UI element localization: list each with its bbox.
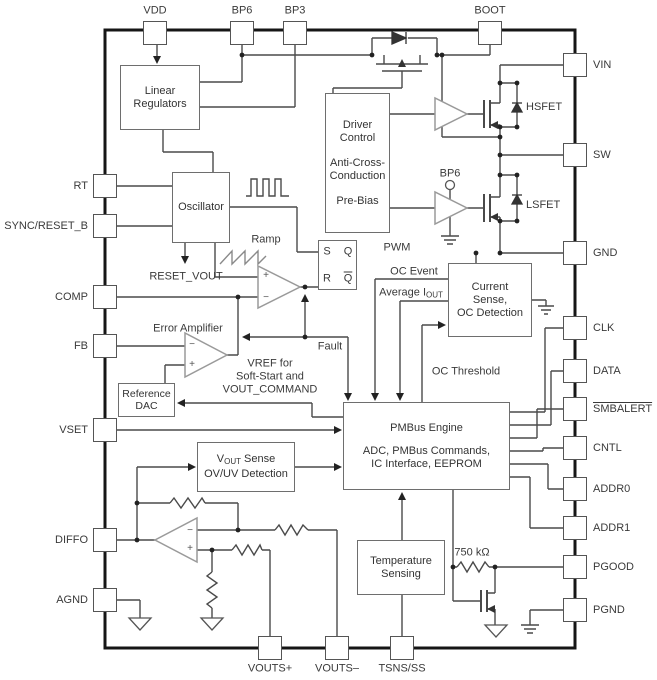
pin-vouts-minus	[325, 636, 349, 660]
current-sense-line2: Sense,	[473, 294, 507, 307]
pin-fb-label: FB	[74, 340, 88, 353]
pin-rt	[93, 174, 117, 198]
pin-bp6-label: BP6	[232, 5, 253, 18]
resistor-750k	[457, 562, 489, 572]
diff-amp-minus: −	[187, 526, 193, 536]
oc-event-label: OC Event	[390, 266, 438, 279]
vref-line2: Soft-Start and	[223, 371, 318, 384]
pin-clk-label: CLK	[593, 322, 614, 335]
clock-waveform-icon	[246, 179, 289, 196]
pin-data	[563, 359, 587, 383]
pin-smbalert	[563, 397, 587, 421]
pin-vouts-minus-label: VOUTS–	[315, 663, 359, 676]
pmbus-title: PMBus Engine	[390, 422, 463, 435]
pin-addr0-label: ADDR0	[593, 483, 630, 496]
latch-qbar-label: Q	[344, 273, 353, 286]
pin-pgood	[563, 555, 587, 579]
pwm-label: PWM	[384, 242, 411, 255]
pin-sw	[563, 143, 587, 167]
pin-cntl-label: CNTL	[593, 442, 622, 455]
reference-dac-line2: DAC	[135, 400, 157, 412]
linear-regulators-line2: Regulators	[133, 98, 186, 111]
reset-vout-label: RESET_VOUT	[149, 271, 222, 284]
resistor-750k-label: 750 kΩ	[454, 547, 489, 560]
driver-control-block: Driver Control Anti-Cross- Conduction Pr…	[325, 93, 390, 233]
fault-label: Fault	[318, 341, 342, 354]
vref-line1: VREF for	[223, 358, 318, 371]
latch-r-label: R	[323, 273, 331, 286]
pin-vouts-plus	[258, 636, 282, 660]
vref-line3: VOUT_COMMAND	[223, 384, 318, 397]
pmbus-engine-block: PMBus Engine ADC, PMBus Commands, IC Int…	[343, 402, 510, 490]
hs-gate-driver	[435, 98, 467, 130]
driver-control-line5: Pre-Bias	[336, 195, 378, 208]
pin-vin-label: VIN	[593, 59, 611, 72]
pmbus-line2: IC Interface, EEPROM	[371, 458, 482, 471]
vout-sense-line2: OV/UV Detection	[204, 468, 288, 481]
pin-sync-reset-b-label: SYNC/RESET_B	[4, 220, 88, 233]
fet-bars	[481, 100, 490, 612]
temperature-line1: Temperature	[370, 555, 432, 568]
pin-pgnd-label: PGND	[593, 604, 625, 617]
vout-sense-block: VOUT Sense OV/UV Detection	[197, 442, 295, 492]
resistor-plus-input	[232, 545, 262, 555]
pin-sw-label: SW	[593, 149, 611, 162]
linear-regulators-block: Linear Regulators	[120, 65, 200, 130]
current-sense-block: Current Sense, OC Detection	[448, 263, 532, 337]
vout-sense-v: V	[217, 453, 224, 465]
pin-sync-reset-b	[93, 214, 117, 238]
pin-tsns-ss-label: TSNS/SS	[378, 663, 425, 676]
resistor-feedback	[170, 498, 205, 508]
pin-cntl	[563, 436, 587, 460]
ramp-waveform-icon	[220, 251, 266, 264]
pin-bp3	[283, 21, 307, 45]
vout-sense-rest: Sense	[244, 453, 275, 465]
pin-addr1	[563, 516, 587, 540]
pin-clk	[563, 316, 587, 340]
linear-regulators-line1: Linear	[145, 85, 176, 98]
pin-diffo	[93, 528, 117, 552]
error-amp-plus: +	[189, 360, 195, 370]
pin-vouts-plus-label: VOUTS+	[248, 663, 292, 676]
pwm-comparator-plus: +	[263, 271, 269, 281]
vout-sense-sub: OUT	[224, 457, 241, 466]
hsfet-body-diode-icon	[512, 103, 522, 112]
oscillator-block: Oscillator	[172, 172, 230, 243]
pin-comp-label: COMP	[55, 291, 88, 304]
diff-amp-plus: +	[187, 544, 193, 554]
pin-smbalert-label: SMBALERT	[593, 403, 652, 416]
average-iout-label: Average IOUT	[379, 287, 443, 302]
oscillator-label: Oscillator	[178, 201, 224, 214]
lsfet-body-diode-icon	[512, 195, 522, 204]
ls-gate-driver	[435, 192, 467, 224]
current-sense-line1: Current	[472, 281, 509, 294]
pin-tsns-ss	[390, 636, 414, 660]
pin-vset	[93, 418, 117, 442]
lsfet-label: LSFET	[526, 199, 560, 212]
pwm-comparator-minus: −	[263, 293, 269, 303]
pin-gnd	[563, 241, 587, 265]
average-iout-prefix: Average I	[379, 287, 426, 299]
bootstrap-diode-icon	[392, 32, 406, 44]
pin-vdd	[143, 21, 167, 45]
pin-gnd-label: GND	[593, 247, 617, 260]
latch-s-label: S	[323, 246, 330, 259]
resistor-to-ground	[207, 572, 217, 608]
pin-boot-label: BOOT	[474, 5, 505, 18]
pin-vin	[563, 53, 587, 77]
driver-control-line4: Conduction	[330, 170, 386, 183]
pin-boot	[478, 21, 502, 45]
pin-agnd	[93, 588, 117, 612]
pin-vset-label: VSET	[59, 424, 88, 437]
hsfet-label: HSFET	[526, 101, 562, 114]
reference-dac-line1: Reference	[122, 388, 170, 400]
vref-annotation: VREF for Soft-Start and VOUT_COMMAND	[223, 358, 318, 397]
bp6-internal-label: BP6	[440, 168, 461, 181]
driver-control-group1: Driver Control	[340, 119, 375, 145]
average-iout-sub: OUT	[426, 291, 443, 300]
temperature-line2: Sensing	[381, 568, 421, 581]
error-amplifier-label: Error Amplifier	[153, 323, 223, 336]
vout-sense-line1: VOUT Sense	[217, 453, 276, 468]
ramp-label: Ramp	[251, 234, 280, 247]
oc-threshold-label: OC Threshold	[432, 366, 500, 379]
block-diagram: Linear Regulators Oscillator Driver Cont…	[0, 0, 657, 680]
analog-ground-icons	[129, 618, 507, 637]
pin-vdd-label: VDD	[143, 5, 166, 18]
pin-bp6	[230, 21, 254, 45]
driver-control-line3: Anti-Cross-	[330, 157, 386, 170]
bp6-terminal-icon	[446, 181, 455, 190]
driver-control-line1: Driver	[340, 119, 375, 132]
pin-pgood-label: PGOOD	[593, 561, 634, 574]
current-sense-line3: OC Detection	[457, 307, 523, 320]
pin-comp	[93, 285, 117, 309]
pin-data-label: DATA	[593, 365, 621, 378]
pin-bp3-label: BP3	[285, 5, 306, 18]
latch-q-label: Q	[344, 246, 353, 259]
pin-fb	[93, 334, 117, 358]
pin-rt-label: RT	[74, 180, 88, 193]
pin-addr0	[563, 477, 587, 501]
temperature-sensing-block: Temperature Sensing	[357, 540, 445, 595]
driver-control-line2: Control	[340, 132, 375, 145]
pin-diffo-label: DIFFO	[55, 534, 88, 547]
pin-agnd-label: AGND	[56, 594, 88, 607]
driver-control-group2: Anti-Cross- Conduction	[330, 157, 386, 183]
reference-dac-block: Reference DAC	[118, 383, 175, 417]
pin-pgnd	[563, 598, 587, 622]
resistor-minus-input	[275, 525, 308, 535]
error-amp-minus: −	[189, 340, 195, 350]
pin-addr1-label: ADDR1	[593, 522, 630, 535]
pmbus-line1: ADC, PMBus Commands,	[363, 445, 490, 458]
